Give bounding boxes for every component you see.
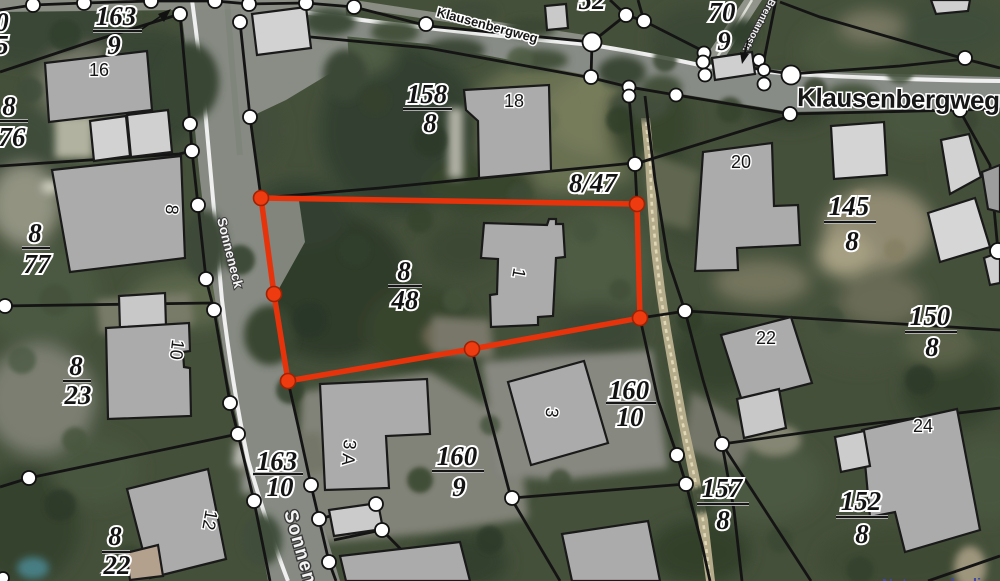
- svg-text:8: 8: [925, 332, 939, 362]
- svg-text:76: 76: [0, 122, 26, 152]
- svg-text:8: 8: [2, 91, 16, 121]
- svg-text:Nutzungsbedingungen: Nutzungsbedingungen: [882, 576, 1000, 581]
- svg-text:150: 150: [910, 301, 951, 331]
- svg-text:12: 12: [198, 508, 221, 531]
- svg-text:8: 8: [845, 226, 859, 256]
- svg-text:8: 8: [397, 256, 411, 286]
- svg-text:70: 70: [709, 0, 737, 27]
- svg-text:16: 16: [89, 60, 109, 80]
- svg-text:10: 10: [617, 402, 645, 432]
- svg-text:8: 8: [28, 218, 42, 248]
- svg-text:8: 8: [423, 108, 437, 138]
- svg-text:157: 157: [702, 473, 744, 503]
- svg-text:8: 8: [716, 505, 730, 535]
- svg-text:163: 163: [96, 1, 137, 31]
- svg-text:22: 22: [103, 550, 131, 580]
- svg-text:22: 22: [756, 328, 776, 348]
- svg-text:145: 145: [829, 191, 870, 221]
- svg-text:48: 48: [391, 285, 420, 315]
- svg-text:8/47: 8/47: [569, 168, 619, 198]
- svg-text:10: 10: [166, 339, 188, 361]
- svg-text:152: 152: [841, 486, 882, 516]
- svg-text:160: 160: [437, 441, 478, 471]
- svg-text:5: 5: [0, 30, 9, 60]
- svg-text:8: 8: [108, 521, 122, 551]
- svg-text:158: 158: [407, 79, 448, 109]
- svg-text:9: 9: [452, 472, 466, 502]
- svg-text:20: 20: [731, 152, 751, 172]
- svg-text:8: 8: [69, 351, 83, 381]
- svg-text:3 A: 3 A: [338, 439, 360, 467]
- svg-text:10: 10: [267, 472, 295, 502]
- svg-text:18: 18: [504, 91, 524, 111]
- svg-text:9: 9: [107, 30, 121, 60]
- svg-text:Klausenbergweg: Klausenbergweg: [797, 82, 1000, 116]
- svg-text:3: 3: [542, 407, 563, 419]
- svg-text:77: 77: [24, 249, 53, 279]
- svg-text:160: 160: [609, 375, 650, 405]
- svg-text:8: 8: [855, 519, 869, 549]
- svg-text:8: 8: [162, 204, 183, 216]
- svg-text:23: 23: [64, 380, 92, 410]
- svg-text:52: 52: [579, 0, 606, 15]
- svg-text:24: 24: [913, 416, 933, 436]
- svg-text:9: 9: [717, 26, 731, 56]
